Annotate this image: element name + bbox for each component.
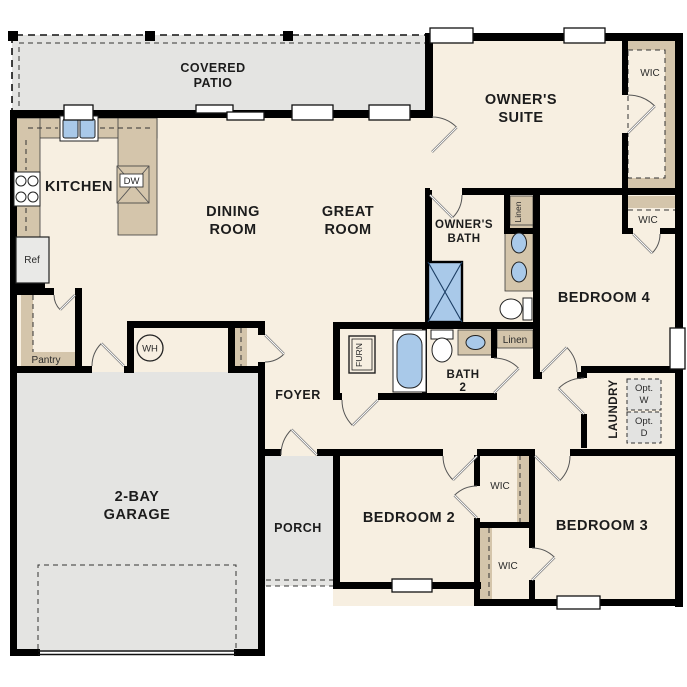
- wall-pantry-top: [14, 288, 54, 295]
- wall-laundry-west-b: [581, 414, 587, 448]
- wall-coat-east-b: [258, 362, 265, 372]
- toilet-bowl: [500, 299, 522, 319]
- pantry-shelf-left: [21, 295, 33, 355]
- bath2-label-1: BATH: [446, 369, 479, 381]
- optional-washer-line2: W: [640, 395, 649, 406]
- owners-wic-label: WIC: [640, 68, 659, 79]
- wall-wic-col-east-a: [529, 455, 535, 548]
- great-room-label-1: GREAT: [322, 204, 374, 220]
- wall-niche-left: [127, 321, 134, 373]
- wall-bedroom4-south-a: [533, 372, 542, 379]
- wall-right-outer: [675, 33, 683, 607]
- covered-patio-label-1: COVERED: [180, 61, 245, 75]
- wall-suite-south-b: [462, 188, 683, 195]
- owners-shower: [428, 262, 462, 322]
- bedroom2-label: BEDROOM 2: [363, 510, 455, 526]
- wall-owners-wic-west-a: [622, 40, 628, 95]
- wall-niche-divider: [228, 321, 235, 373]
- toilet-bowl: [432, 338, 452, 362]
- wall-bath2-bottom-b: [378, 393, 497, 400]
- wall-laundry-top: [581, 366, 683, 373]
- wall-pantry-east: [75, 288, 82, 366]
- covered-patio-label-2: PATIO: [194, 76, 233, 90]
- wall-owners-linen-west: [504, 194, 510, 228]
- garage-label-1: 2-BAY: [115, 489, 160, 505]
- foyer-label: FOYER: [275, 388, 321, 402]
- great-room-label-2: ROOM: [324, 222, 371, 238]
- owners-suite-window: [564, 28, 605, 43]
- owners-bath-label-1: OWNER'S: [435, 219, 493, 231]
- optional-dryer-line2: D: [641, 428, 648, 439]
- refrigerator: Ref: [16, 237, 49, 283]
- dining-room-label-1: DINING: [206, 204, 260, 220]
- tub-basin: [397, 334, 422, 388]
- bedroom3-wic-shelf: [480, 528, 492, 599]
- bath2-sink: [466, 336, 485, 350]
- wall-owners-wic-west-b: [622, 133, 628, 188]
- garage-door-line: [38, 651, 236, 655]
- pantry-label: Pantry: [32, 355, 61, 366]
- optional-washer-line1: Opt.: [635, 383, 653, 394]
- wall-porch-top-a: [258, 449, 281, 456]
- kitchen-sink-basin: [63, 119, 78, 138]
- furnace-label: FURN: [354, 343, 364, 367]
- kitchen-window: [64, 105, 93, 120]
- water-heater-label: WH: [142, 344, 158, 355]
- great-room-window: [369, 105, 410, 120]
- wall-coat-east-a: [258, 321, 265, 335]
- bedroom4-wic-label: WIC: [638, 215, 657, 226]
- kitchen-label: KITCHEN: [45, 179, 113, 195]
- bedroom2-wic-shelf: [517, 455, 529, 522]
- wall-bedroom2-west: [333, 455, 340, 589]
- wall-wic4-south-a: [622, 228, 633, 234]
- wall-owners-linen-south: [504, 228, 540, 234]
- water-heater: WH: [137, 335, 163, 361]
- floor-plan-drawing: DW Ref WH FURN: [0, 0, 687, 687]
- wall-niche-top: [127, 321, 265, 328]
- floor-plan-page: DW Ref WH FURN: [0, 0, 687, 687]
- optional-dryer: Opt. D: [627, 412, 661, 443]
- furnace: FURN: [349, 336, 375, 373]
- owners-bath-sink: [512, 233, 527, 253]
- wall-hall-south-c: [570, 449, 683, 456]
- owners-linen-label: Linen: [513, 201, 523, 222]
- laundry-side-window: [670, 328, 685, 369]
- great-room-window: [292, 105, 333, 120]
- wall-suite-south-a: [425, 188, 430, 195]
- owners-bath-label-2: BATH: [447, 233, 480, 245]
- bedroom3-wic-label: WIC: [498, 561, 517, 572]
- porch-label: PORCH: [274, 521, 322, 535]
- wall-bath2-west: [333, 322, 340, 400]
- wall-garage-right: [258, 372, 265, 656]
- patio-post: [145, 31, 155, 41]
- bath2-tub: [393, 330, 426, 392]
- optional-dryer-line1: Opt.: [635, 416, 653, 427]
- wall-suite-west: [425, 33, 433, 118]
- bedroom2-window: [392, 579, 432, 592]
- bath2-label-2: 2: [460, 382, 467, 394]
- wall-wic4-south-b: [660, 228, 683, 234]
- wall-bedroom4-west: [533, 194, 540, 372]
- kitchen-sink-basin: [80, 119, 95, 138]
- optional-washer: Opt. W: [627, 379, 661, 410]
- toilet-tank: [523, 298, 532, 320]
- bedroom4-label: BEDROOM 4: [558, 290, 650, 306]
- patio-post: [8, 31, 18, 41]
- bedroom2-wic-label: WIC: [490, 481, 509, 492]
- bath2-toilet: [431, 330, 453, 362]
- hall-linen-label: Linen: [503, 335, 527, 346]
- owners-bath-sink: [512, 262, 527, 282]
- patio-slider-panel: [227, 112, 264, 120]
- wall-wic-col-west-b: [474, 518, 480, 606]
- wall-garage-top-a: [14, 366, 92, 373]
- bedroom3-window: [557, 596, 600, 609]
- dishwasher-label: DW: [124, 176, 140, 187]
- refrigerator-label: Ref: [24, 255, 40, 266]
- wall-garage-bottom-left: [10, 649, 40, 656]
- owners-suite-label-1: OWNER'S: [485, 92, 557, 108]
- dishwasher: DW: [117, 166, 149, 203]
- laundry-label: LAUNDRY: [608, 379, 620, 438]
- bedroom3-label: BEDROOM 3: [556, 518, 648, 534]
- patio-post: [283, 31, 293, 41]
- wall-porch-top-b: [317, 449, 333, 456]
- wall-bath2-bottom-a: [333, 393, 342, 400]
- owners-bath-toilet: [500, 298, 532, 320]
- covered-patio-floor: [12, 35, 428, 115]
- owners-suite-window: [430, 28, 473, 43]
- wall-hall-south-b: [477, 449, 535, 456]
- wall-hall-south-a: [333, 449, 443, 456]
- garage-label-2: GARAGE: [104, 507, 171, 523]
- wall-bath2-east: [491, 328, 497, 358]
- wall-wic-divider: [474, 522, 535, 528]
- dining-room-label-2: ROOM: [209, 222, 256, 238]
- bedroom4-wic-shelf: [628, 196, 675, 208]
- owners-suite-label-2: SUITE: [498, 110, 543, 126]
